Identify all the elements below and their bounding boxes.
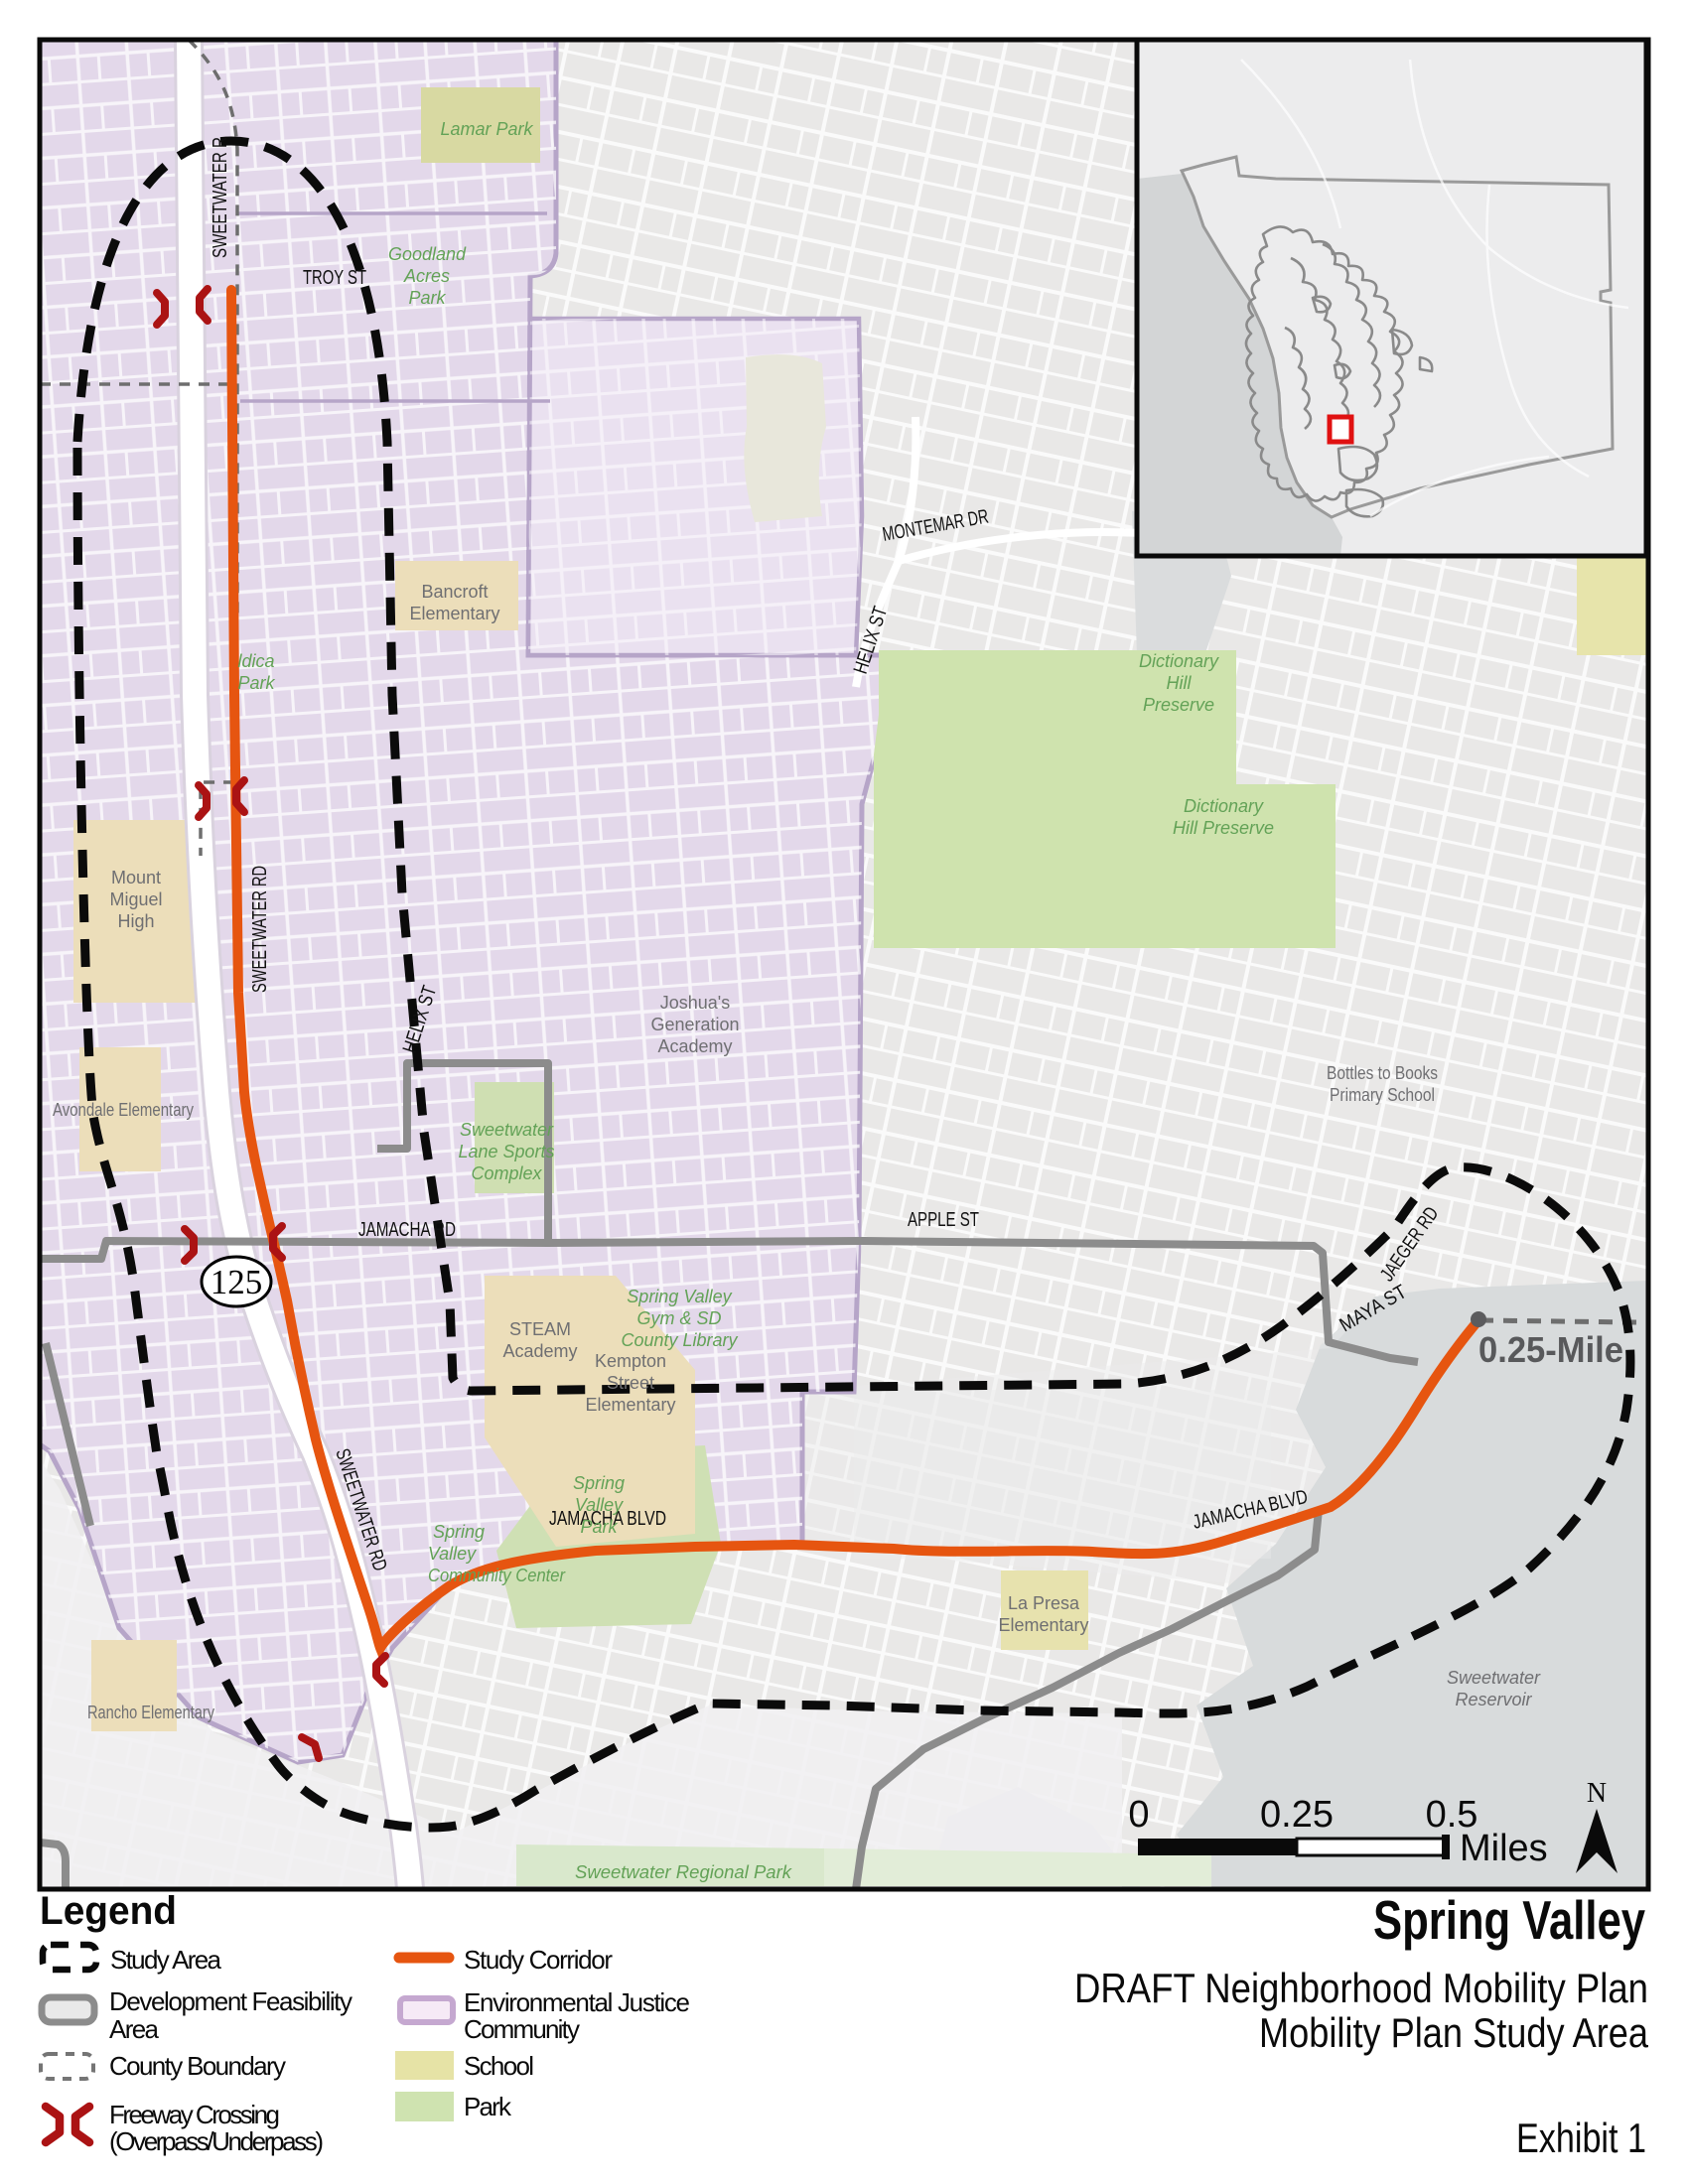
svg-text:Spring Valley: Spring Valley: [1373, 1889, 1645, 1951]
svg-text:N: N: [1587, 1778, 1607, 1809]
svg-text:Acres: Acres: [403, 266, 450, 286]
svg-text:Joshua's: Joshua's: [660, 993, 730, 1013]
svg-text:Park: Park: [464, 2092, 512, 2121]
svg-text:County Library: County Library: [621, 1330, 738, 1350]
svg-text:Freeway Crossing: Freeway Crossing: [109, 2100, 280, 2129]
svg-text:Spring Valley: Spring Valley: [627, 1287, 732, 1306]
svg-text:Reservoir: Reservoir: [1455, 1690, 1532, 1709]
svg-text:Goodland: Goodland: [388, 244, 467, 264]
svg-text:0: 0: [1128, 1794, 1149, 1836]
svg-text:Community: Community: [464, 2014, 580, 2044]
svg-text:Hill: Hill: [1167, 673, 1193, 693]
svg-text:Dictionary: Dictionary: [1139, 651, 1219, 671]
svg-text:Sweetwater: Sweetwater: [460, 1120, 554, 1140]
svg-text:Sweetwater: Sweetwater: [1447, 1668, 1541, 1688]
svg-text:Bancroft: Bancroft: [421, 582, 488, 602]
svg-text:Valley: Valley: [428, 1544, 477, 1564]
svg-text:Miles: Miles: [1460, 1828, 1548, 1869]
svg-text:Sweetwater Regional Park: Sweetwater Regional Park: [575, 1862, 792, 1882]
svg-text:Elementary: Elementary: [409, 604, 499, 623]
svg-text:Mobility Plan Study Area: Mobility Plan Study Area: [1259, 2009, 1649, 2056]
svg-text:Study Area: Study Area: [110, 1945, 222, 1975]
svg-text:APPLE ST: APPLE ST: [908, 1209, 979, 1231]
svg-text:SWEETWATER RD: SWEETWATER RD: [249, 866, 271, 993]
svg-text:Lamar Park: Lamar Park: [440, 119, 533, 139]
svg-text:Dictionary: Dictionary: [1184, 796, 1264, 816]
svg-text:Park: Park: [237, 673, 275, 693]
svg-text:Elementary: Elementary: [585, 1395, 675, 1415]
svg-text:Exhibit 1: Exhibit 1: [1516, 2115, 1646, 2161]
svg-text:Legend: Legend: [40, 1889, 177, 1933]
svg-text:Bottles to Books: Bottles to Books: [1327, 1063, 1438, 1083]
svg-text:Elementary: Elementary: [998, 1615, 1088, 1635]
svg-text:Lane Sports: Lane Sports: [458, 1142, 554, 1161]
svg-text:(Overpass/Underpass): (Overpass/Underpass): [109, 2126, 324, 2156]
svg-text:Spring: Spring: [573, 1473, 625, 1493]
svg-text:Complex: Complex: [471, 1163, 542, 1183]
svg-text:Spring: Spring: [433, 1522, 485, 1542]
svg-text:Valley: Valley: [575, 1495, 624, 1515]
svg-text:DRAFT Neighborhood Mobility Pl: DRAFT Neighborhood Mobility Plan: [1074, 1965, 1648, 2011]
svg-text:School: School: [464, 2051, 534, 2081]
svg-text:TROY ST: TROY ST: [303, 267, 366, 289]
svg-text:ldica: ldica: [237, 651, 274, 671]
svg-text:Primary School: Primary School: [1330, 1085, 1435, 1105]
svg-text:0.25-Mile: 0.25-Mile: [1478, 1329, 1623, 1370]
svg-text:SWEETWATER R: SWEETWATER R: [210, 137, 231, 258]
svg-text:Preserve: Preserve: [1143, 695, 1214, 715]
svg-text:Community Center: Community Center: [428, 1566, 566, 1585]
svg-text:Park: Park: [580, 1517, 618, 1537]
svg-text:Mount: Mount: [111, 868, 161, 887]
svg-text:Generation: Generation: [650, 1015, 739, 1034]
svg-text:Development Feasibility: Development Feasibility: [109, 1986, 352, 2016]
svg-text:Avondale Elementary: Avondale Elementary: [53, 1100, 194, 1120]
svg-text:Academy: Academy: [502, 1341, 577, 1361]
svg-text:La Presa: La Presa: [1008, 1593, 1080, 1613]
svg-text:Hill Preserve: Hill Preserve: [1173, 818, 1274, 838]
svg-text:Study Corridor: Study Corridor: [464, 1945, 613, 1975]
svg-text:Environmental Justice: Environmental Justice: [464, 1987, 690, 2017]
svg-text:Rancho Elementary: Rancho Elementary: [87, 1703, 214, 1722]
svg-text:Street: Street: [607, 1373, 654, 1393]
svg-text:0.25: 0.25: [1260, 1794, 1334, 1836]
svg-text:STEAM: STEAM: [509, 1319, 571, 1339]
svg-text:Kempton: Kempton: [595, 1351, 666, 1371]
svg-text:Academy: Academy: [657, 1036, 732, 1056]
svg-text:Park: Park: [408, 288, 446, 308]
svg-text:County Boundary: County Boundary: [109, 2051, 286, 2081]
svg-text:Area: Area: [109, 2014, 160, 2044]
svg-text:Miguel: Miguel: [109, 889, 162, 909]
svg-text:High: High: [117, 911, 154, 931]
svg-text:125: 125: [211, 1263, 263, 1301]
svg-text:JAMACHA RD: JAMACHA RD: [358, 1219, 456, 1241]
svg-text:Gym & SD: Gym & SD: [636, 1308, 721, 1328]
